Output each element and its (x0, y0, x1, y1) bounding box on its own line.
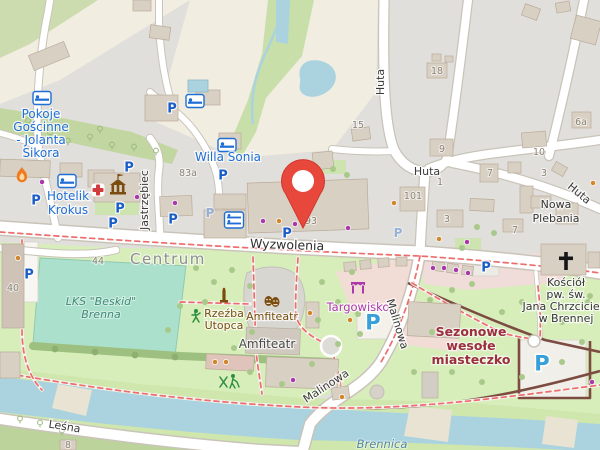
building (521, 131, 546, 148)
hostel-icon (225, 212, 244, 228)
tree (177, 303, 183, 309)
building (214, 194, 246, 209)
parking-icon[interactable]: P (218, 169, 228, 184)
hedge-tree (52, 346, 59, 353)
building (470, 198, 495, 211)
shop-dot (430, 265, 435, 270)
tree (349, 269, 355, 275)
monument-column (222, 290, 225, 300)
tree (279, 381, 285, 387)
label-amfiteatr-building: Amfiteatr (239, 337, 296, 351)
bed-pillow (36, 95, 39, 98)
private-parking-icon[interactable]: P (206, 206, 215, 220)
house-number: 83a (179, 168, 197, 179)
building (396, 257, 407, 266)
parking-icon-large[interactable]: P (365, 311, 380, 335)
building (149, 25, 171, 41)
house-number: 8 (65, 440, 71, 450)
mask-mouth (274, 304, 278, 305)
bunk-mattress (227, 223, 241, 225)
bed-pillow (221, 142, 224, 145)
mask-eye (273, 300, 275, 302)
amenity-dot (436, 236, 441, 241)
parking-icon[interactable]: P (124, 161, 134, 176)
label-brennica: Brennica (357, 437, 408, 450)
parking-icon[interactable]: P (168, 213, 178, 228)
amenity-dot (276, 218, 281, 223)
amenity-dot (212, 359, 217, 364)
mask-eye (276, 300, 278, 302)
base (110, 192, 126, 195)
amenity-dot (223, 359, 228, 364)
bunk-frame (225, 212, 244, 228)
shop-dot (172, 200, 177, 205)
bed-frame (33, 92, 51, 105)
tree (165, 327, 171, 333)
hotel-icon (58, 175, 76, 188)
building (432, 54, 441, 61)
tree (247, 369, 253, 375)
bed-mattress (60, 182, 74, 184)
tree (559, 359, 565, 365)
road-huta-connector (420, 172, 425, 253)
stall-leg (362, 286, 364, 294)
house-number: 40 (7, 283, 19, 294)
building (360, 260, 372, 270)
shop-dot (292, 221, 297, 226)
bunk-pillow (228, 220, 231, 223)
mask-mouth (267, 303, 271, 304)
amenity-dot (347, 317, 352, 322)
swimming-pool (188, 80, 208, 92)
tree (309, 361, 315, 367)
bed-pillow (61, 178, 64, 181)
tree (231, 345, 237, 351)
marker-hole[interactable] (292, 170, 314, 192)
gravel-bar-2 (404, 406, 452, 442)
mask-left (265, 296, 273, 306)
house-number: 7 (487, 168, 493, 179)
house-number: 15 (352, 120, 364, 131)
tree (459, 245, 465, 251)
column (122, 185, 125, 192)
amenity-dot (339, 394, 344, 399)
tree (229, 267, 235, 273)
bed-mattress (220, 146, 234, 148)
house-number: 6a (575, 117, 587, 128)
road-field-stub (332, 149, 396, 151)
house-number: 44 (92, 256, 104, 267)
hotel-icon (33, 92, 51, 105)
shop-dot (589, 379, 594, 384)
building (555, 1, 571, 13)
parking-icon[interactable]: P (115, 202, 125, 217)
tree (479, 379, 485, 385)
tree (357, 331, 363, 337)
map-viewport[interactable]: PPPPPPPPPPPPPPPokojeGościnne- JolantaSik… (0, 0, 600, 450)
shop-dot (39, 179, 44, 184)
parking-icon[interactable]: P (24, 268, 34, 283)
house-number: 3 (444, 214, 450, 225)
bunk-pillow (228, 214, 231, 217)
map-canvas[interactable]: PPPPPPPPPPPPPPPokojeGościnne- JolantaSik… (0, 0, 600, 450)
health-cross-icon (92, 184, 105, 197)
tree (249, 329, 255, 335)
tree (579, 339, 585, 345)
tree (319, 279, 325, 285)
monument-base (220, 300, 228, 303)
tree (491, 230, 497, 236)
cross-v (96, 185, 100, 196)
tree (449, 287, 455, 293)
shop-dot (464, 239, 469, 244)
tree (429, 329, 435, 335)
shop-dot (290, 377, 295, 382)
parking-icon-large[interactable]: P (534, 352, 549, 376)
gravel-bar-3 (542, 416, 578, 448)
label-jastrzebiec: Jastrzębiec (138, 170, 151, 231)
hotel-icon (186, 95, 204, 108)
funfair-circle (370, 385, 384, 399)
hedge-tree (132, 352, 139, 359)
house-number: 3 (541, 168, 547, 179)
label-rzezba-utopca: RzeźbaUtopca (204, 307, 244, 332)
shop-dot (453, 267, 458, 272)
building (422, 372, 438, 398)
building (445, 56, 453, 62)
tree (411, 369, 417, 375)
private-parking-icon[interactable]: P (394, 226, 403, 240)
label-huta-vertical: Huta (374, 69, 387, 95)
tree (211, 279, 217, 285)
label-centrum: Centrum (130, 250, 206, 268)
tree (202, 299, 208, 305)
church-cross-v (564, 252, 568, 270)
label-wyzwolenia: Wyzwolenia (250, 236, 325, 254)
mask-eye (266, 299, 268, 301)
house-number: 7 (512, 225, 518, 236)
monument-top (223, 288, 226, 291)
label-willa-sonia: Willa Sonia (195, 150, 261, 164)
tree (315, 317, 321, 323)
mask-right (272, 297, 280, 307)
house-number: 1 (437, 177, 443, 188)
column (112, 185, 115, 192)
amenity-dot (15, 255, 20, 260)
parking-icon[interactable]: P (481, 261, 491, 276)
amenity-dot (590, 180, 595, 185)
shop-dot (465, 270, 470, 275)
parking-icon[interactable]: P (167, 102, 177, 117)
hedge-tree (172, 354, 179, 361)
house-number: 101 (404, 191, 422, 202)
building (508, 162, 521, 173)
tree (335, 341, 341, 347)
building (588, 252, 600, 268)
house-number: 18 (431, 66, 443, 77)
parking-entrance-knob (528, 335, 540, 347)
label-hotelik-krokus: HotelikKrokus (47, 189, 89, 217)
bed-pillow (189, 98, 192, 101)
house-number: 10 (533, 147, 545, 158)
church-cross-h (559, 257, 573, 261)
amenity-dot (391, 200, 396, 205)
building (133, 0, 151, 11)
tree (474, 224, 480, 230)
tree (449, 369, 455, 375)
shop-dot (260, 218, 265, 223)
bed-frame (186, 95, 204, 108)
bunk-mattress (227, 217, 241, 219)
tree (247, 283, 253, 289)
bed-mattress (188, 102, 202, 104)
amenity-dot (307, 310, 312, 315)
label-targowisko: Targowisko (326, 300, 390, 314)
bed-frame (58, 175, 76, 188)
shop-dot (441, 265, 446, 270)
tree (330, 166, 336, 172)
house-number: 9 (439, 144, 445, 155)
tree (344, 172, 350, 178)
tree (469, 281, 475, 287)
parking-icon[interactable]: P (31, 194, 41, 209)
stall-leg (352, 286, 354, 294)
tree (499, 309, 505, 315)
tree (519, 374, 525, 380)
label-amfiteatr-poi: Amfiteatr (246, 310, 298, 323)
building (378, 258, 390, 268)
tree (427, 297, 433, 303)
hedge-tree (92, 349, 99, 356)
building (0, 352, 20, 378)
column (117, 185, 120, 192)
mask-eye (269, 299, 271, 301)
parking-icon[interactable]: P (108, 217, 118, 232)
shop-dot (345, 225, 350, 230)
bed-mattress (35, 99, 49, 101)
tree (587, 293, 593, 299)
